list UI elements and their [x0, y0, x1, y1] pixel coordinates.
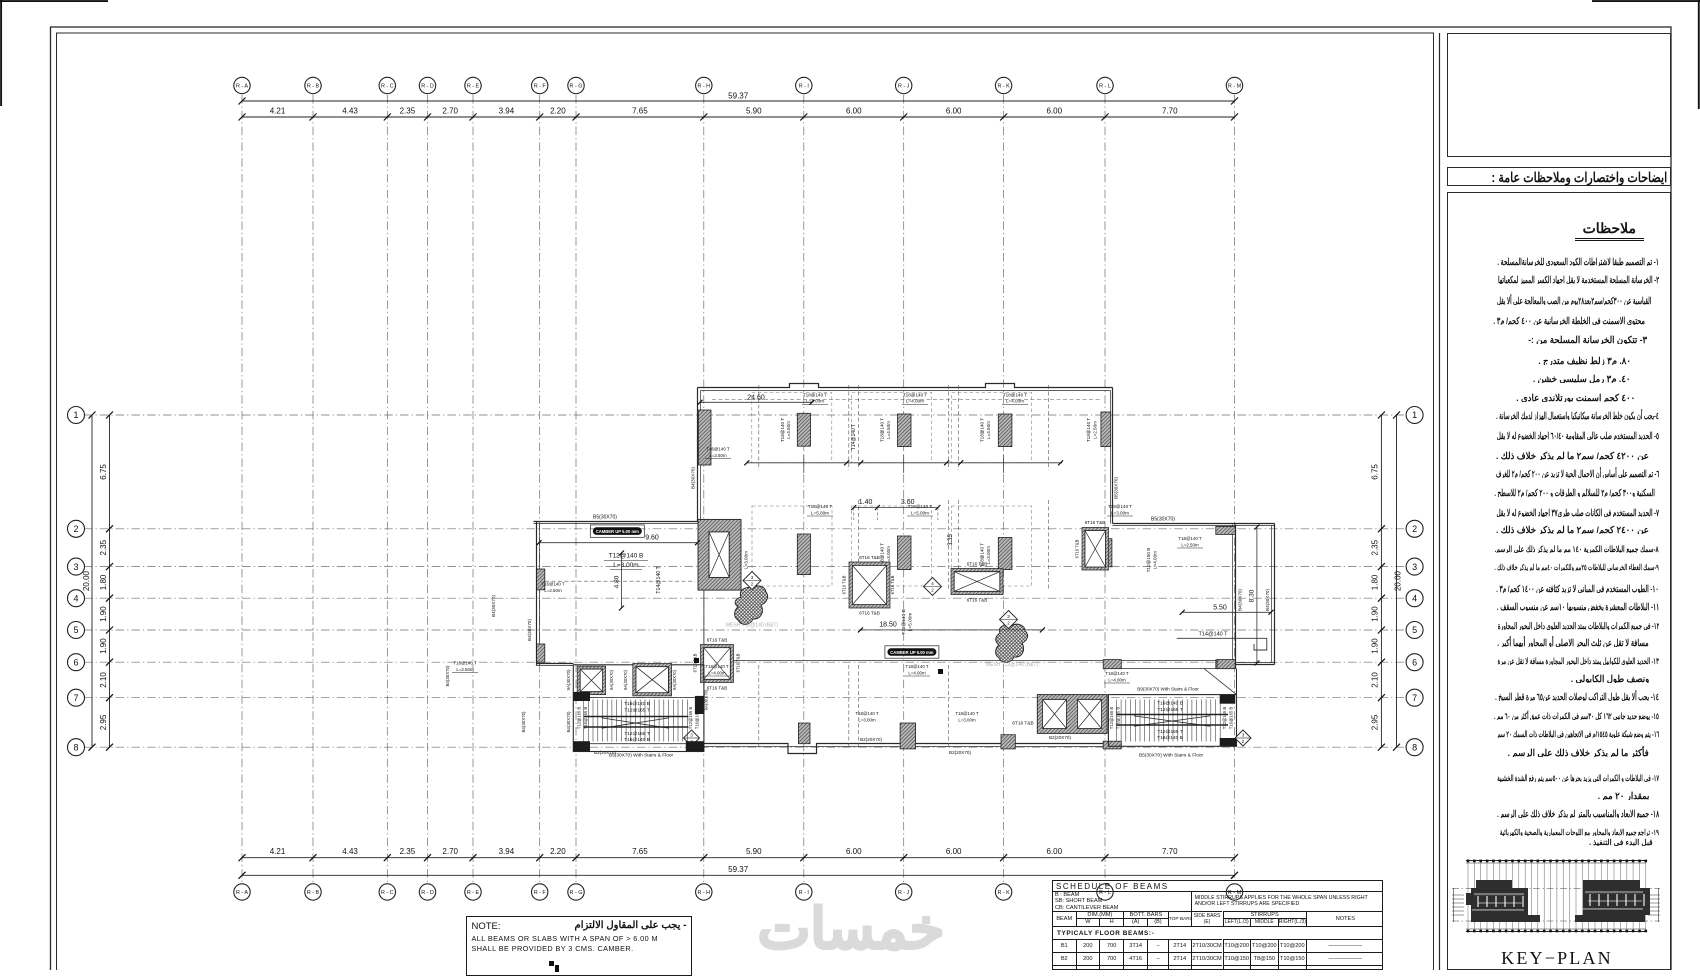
svg-text:6T16 T&B: 6T16 T&B — [859, 555, 880, 560]
svg-text:4.43: 4.43 — [342, 107, 358, 116]
svg-text:T14@140 T: T14@140 T — [1198, 631, 1228, 637]
svg-text:T18@140 T: T18@140 T — [780, 418, 785, 442]
svg-text:R - L: R - L — [1099, 84, 1111, 90]
svg-text:B4(30X70): B4(30X70) — [527, 619, 532, 641]
svg-text:L=3.00m: L=3.00m — [743, 551, 748, 569]
svg-text:2.35: 2.35 — [400, 847, 416, 856]
svg-text:L=5.00m: L=5.00m — [908, 613, 914, 632]
svg-text:20.00: 20.00 — [82, 570, 91, 591]
svg-text:T16@140 B: T16@140 B — [624, 701, 650, 707]
svg-text:1.40: 1.40 — [859, 499, 873, 506]
svg-text:24.60: 24.60 — [747, 394, 765, 401]
svg-text:3.60: 3.60 — [901, 499, 915, 506]
svg-text:L=3.00m: L=3.00m — [858, 717, 876, 722]
svg-text:3.94: 3.94 — [499, 847, 515, 856]
svg-text:T18@140 T: T18@140 T — [1086, 418, 1091, 442]
svg-text:2.10: 2.10 — [99, 672, 108, 688]
svg-text:CAMBER UP 5.00 mm: CAMBER UP 5.00 mm — [890, 650, 933, 655]
svg-text:1.90: 1.90 — [1371, 606, 1380, 622]
svg-text:L=4.00m: L=4.00m — [1108, 677, 1126, 682]
svg-text:T18@140 T: T18@140 T — [980, 418, 985, 442]
svg-text:B5(30X70) With Stairs & Floor: B5(30X70) With Stairs & Floor — [1139, 753, 1204, 759]
svg-text:6T16 T&B: 6T16 T&B — [967, 598, 988, 603]
svg-text:T12@165 T: T12@165 T — [1157, 707, 1182, 713]
svg-text:1.80: 1.80 — [99, 574, 108, 590]
svg-text:L=5.00m: L=5.00m — [911, 510, 929, 515]
svg-text:MESH T12@140 (B&T): MESH T12@140 (B&T) — [726, 623, 779, 629]
svg-text:T12@140 B: T12@140 B — [901, 609, 907, 635]
svg-text:2.70: 2.70 — [442, 107, 458, 116]
svg-text:1: 1 — [73, 410, 78, 420]
svg-text:R - A: R - A — [236, 84, 248, 90]
svg-text:T18@140 T: T18@140 T — [1108, 504, 1132, 509]
svg-text:T18@140 T: T18@140 T — [905, 664, 928, 669]
svg-text:R - B: R - B — [307, 890, 320, 896]
svg-text:B5(30X70): B5(30X70) — [593, 515, 617, 521]
svg-text:L=3.00m: L=3.00m — [958, 717, 976, 722]
svg-text:L=3.00m: L=3.00m — [886, 546, 891, 564]
svg-text:6T16 T&B: 6T16 T&B — [736, 653, 741, 672]
svg-text:R - F: R - F — [534, 84, 547, 90]
svg-text:5.50: 5.50 — [1213, 604, 1227, 611]
svg-text:4.21: 4.21 — [270, 107, 286, 116]
svg-text:6T16 T&B: 6T16 T&B — [859, 611, 880, 616]
svg-text:1.90: 1.90 — [99, 606, 108, 622]
svg-text:6.00: 6.00 — [846, 847, 862, 856]
svg-text:1: 1 — [1412, 410, 1417, 420]
svg-text:R - B: R - B — [307, 84, 320, 90]
svg-text:4.21: 4.21 — [270, 847, 286, 856]
svg-text:B4(30X70): B4(30X70) — [491, 595, 496, 617]
svg-text:4: 4 — [1412, 593, 1417, 603]
svg-text:T16@140 B: T16@140 B — [624, 737, 650, 743]
svg-text:T16@140 T: T16@140 T — [706, 447, 729, 452]
svg-text:R - F: R - F — [534, 890, 547, 896]
svg-text:R - M: R - M — [1228, 84, 1242, 90]
svg-text:6.00: 6.00 — [1047, 847, 1063, 856]
svg-text:6.75: 6.75 — [99, 464, 108, 480]
svg-text:CAMBER UP 5.00 mm: CAMBER UP 5.00 mm — [596, 529, 639, 534]
svg-text:T18@140 T: T18@140 T — [1178, 536, 1201, 541]
svg-text:T16@165 B: T16@165 B — [1116, 707, 1121, 730]
svg-text:6T16 T&B: 6T16 T&B — [707, 686, 728, 691]
svg-text:T18@140 T: T18@140 T — [903, 392, 927, 397]
svg-text:6T16 T&B: 6T16 T&B — [1085, 520, 1106, 525]
svg-text:6.00: 6.00 — [846, 107, 862, 116]
svg-text:6.00: 6.00 — [946, 847, 962, 856]
svg-text:R - I: R - I — [799, 84, 809, 90]
svg-text:2: 2 — [73, 524, 78, 534]
svg-text:3.94: 3.94 — [499, 107, 515, 116]
svg-text:2.20: 2.20 — [550, 847, 566, 856]
svg-text:2.95: 2.95 — [1371, 714, 1380, 730]
svg-text:2: 2 — [1412, 524, 1417, 534]
svg-text:R - H: R - H — [698, 890, 711, 896]
svg-text:B5(30X70) With Stairs & Floor: B5(30X70) With Stairs & Floor — [609, 753, 674, 759]
svg-text:L=3.00m: L=3.00m — [613, 562, 638, 569]
svg-text:L=2.50m: L=2.50m — [1181, 542, 1199, 547]
svg-text:4.43: 4.43 — [342, 847, 358, 856]
svg-text:MESH T12@140 (B&T): MESH T12@140 (B&T) — [986, 662, 1039, 668]
svg-text:9A(30X70): 9A(30X70) — [704, 689, 709, 711]
svg-text:9.60: 9.60 — [645, 535, 659, 542]
svg-text:B2(20X70): B2(20X70) — [1049, 735, 1071, 740]
svg-text:6.00: 6.00 — [1047, 107, 1063, 116]
svg-text:2.35: 2.35 — [400, 107, 416, 116]
svg-text:18.50: 18.50 — [879, 622, 897, 629]
svg-text:5.90: 5.90 — [746, 847, 762, 856]
svg-text:2.10: 2.10 — [1371, 672, 1380, 688]
svg-text:20.00: 20.00 — [1394, 570, 1403, 591]
svg-text:T18@140 T: T18@140 T — [1105, 671, 1128, 676]
svg-text:1.80: 1.80 — [1371, 574, 1380, 590]
svg-text:L=2.50m: L=2.50m — [456, 667, 474, 672]
svg-text:7.70: 7.70 — [1162, 107, 1178, 116]
svg-text:L=2.50m: L=2.50m — [1092, 421, 1097, 439]
svg-text:1.90: 1.90 — [99, 638, 108, 654]
svg-text:6.00: 6.00 — [946, 107, 962, 116]
svg-text:L=4.50m: L=4.50m — [886, 421, 891, 439]
svg-text:T12@165 T: T12@165 T — [1157, 729, 1182, 735]
svg-text:9A(30X70): 9A(30X70) — [609, 669, 614, 690]
svg-text:5.90: 5.90 — [746, 107, 762, 116]
svg-text:T12@165 T: T12@165 T — [624, 731, 649, 737]
svg-text:B2(20X70): B2(20X70) — [949, 750, 971, 755]
svg-text:R - G: R - G — [570, 84, 583, 90]
svg-text:7.65: 7.65 — [632, 847, 648, 856]
svg-text:L=5.00m: L=5.00m — [811, 510, 829, 515]
svg-text:R - J: R - J — [898, 84, 910, 90]
svg-text:R - C: R - C — [381, 890, 394, 896]
svg-text:9A(30X70): 9A(30X70) — [623, 669, 628, 690]
svg-text:8: 8 — [73, 742, 78, 752]
svg-text:R - E: R - E — [467, 84, 480, 90]
svg-text:B5(30X70): B5(30X70) — [1114, 477, 1119, 499]
svg-text:6T16 T&B: 6T16 T&B — [890, 575, 895, 594]
svg-text:R - D: R - D — [421, 84, 434, 90]
svg-text:6T16 T&B: 6T16 T&B — [707, 638, 728, 643]
svg-text:L=4.00m: L=4.00m — [1152, 551, 1157, 569]
svg-text:3: 3 — [1412, 562, 1417, 572]
svg-text:L=2.50m: L=2.50m — [544, 588, 562, 593]
svg-text:6T16 T&B: 6T16 T&B — [967, 562, 988, 567]
svg-text:T18@140 T: T18@140 T — [705, 664, 728, 669]
svg-text:B9(30X70) With Stairs & Floor: B9(30X70) With Stairs & Floor — [1137, 687, 1199, 692]
svg-text:4: 4 — [73, 593, 78, 603]
svg-text:T16@140 B: T16@140 B — [1157, 701, 1183, 707]
svg-text:T18@140 T: T18@140 T — [955, 711, 978, 716]
svg-text:B4(30X70): B4(30X70) — [566, 711, 571, 733]
svg-text:B4(30X70): B4(30X70) — [445, 665, 450, 687]
svg-text:7.70: 7.70 — [1162, 847, 1178, 856]
svg-text:4.80: 4.80 — [613, 575, 620, 588]
svg-text:R - H: R - H — [698, 84, 711, 90]
svg-text:T12@165 B: T12@165 B — [688, 707, 693, 730]
svg-text:2.35: 2.35 — [99, 539, 108, 555]
svg-text:T12@140 B: T12@140 B — [609, 553, 644, 560]
svg-text:T16@165 B: T16@165 B — [695, 707, 700, 730]
svg-text:T12@165 B: T12@165 B — [1109, 707, 1114, 730]
svg-text:T12@150 B: T12@150 B — [1146, 548, 1151, 573]
svg-text:6.75: 6.75 — [1371, 464, 1380, 480]
svg-text:L=2.50m: L=2.50m — [709, 453, 727, 458]
svg-text:5: 5 — [73, 625, 78, 635]
svg-text:L=3.00m: L=3.00m — [1111, 510, 1129, 515]
svg-text:9A(30X70): 9A(30X70) — [566, 669, 571, 691]
svg-text:L=4.50m: L=4.50m — [986, 421, 991, 439]
svg-text:B4(30X70): B4(30X70) — [521, 711, 526, 733]
svg-text:T18@140 T: T18@140 T — [880, 418, 885, 442]
svg-text:T14@140 T: T14@140 T — [656, 565, 662, 593]
svg-text:R - E: R - E — [467, 890, 480, 896]
svg-text:R - J: R - J — [898, 890, 910, 896]
svg-text:5: 5 — [1412, 625, 1417, 635]
svg-text:R - C: R - C — [381, 84, 394, 90]
svg-text:T12@165 B: T12@165 B — [577, 707, 582, 730]
svg-text:2.35: 2.35 — [1371, 539, 1380, 555]
svg-text:B2(20X70): B2(20X70) — [860, 737, 882, 742]
svg-text:7: 7 — [1412, 693, 1417, 703]
svg-text:T16@165 B: T16@165 B — [1229, 707, 1234, 730]
svg-text:T16@140 B: T16@140 B — [1157, 735, 1183, 741]
svg-text:R - D: R - D — [421, 890, 434, 896]
svg-text:7: 7 — [73, 693, 78, 703]
svg-text:8.30: 8.30 — [1249, 589, 1256, 602]
svg-text:R - K: R - K — [997, 84, 1010, 90]
svg-text:59.37: 59.37 — [728, 865, 749, 874]
svg-text:T18@140 T: T18@140 T — [453, 661, 476, 666]
svg-text:T18@140 T: T18@140 T — [803, 392, 827, 397]
svg-text:2.20: 2.20 — [550, 107, 566, 116]
svg-text:B4(30X70): B4(30X70) — [691, 467, 696, 489]
svg-text:L=4.00m: L=4.00m — [806, 399, 824, 404]
svg-text:R - A: R - A — [236, 890, 248, 896]
svg-text:L=4.50m: L=4.50m — [786, 421, 791, 439]
svg-text:6T16 T&B: 6T16 T&B — [842, 575, 847, 594]
svg-text:8: 8 — [1412, 742, 1417, 752]
svg-text:3.35: 3.35 — [948, 534, 954, 546]
svg-text:L=4.00m: L=4.00m — [908, 670, 926, 675]
svg-text:B4(30X70): B4(30X70) — [1238, 589, 1243, 611]
svg-text:L=4.00m: L=4.00m — [708, 670, 726, 675]
svg-text:B4(30X70): B4(30X70) — [1265, 589, 1270, 611]
svg-text:R - K: R - K — [997, 890, 1010, 896]
svg-text:9A(30X70): 9A(30X70) — [672, 669, 677, 690]
svg-text:T16@165 B: T16@165 B — [583, 707, 588, 730]
svg-text:T16@140 T: T16@140 T — [541, 582, 564, 587]
svg-text:7.65: 7.65 — [632, 107, 648, 116]
svg-text:R - G: R - G — [570, 890, 583, 896]
svg-text:B5(30X70): B5(30X70) — [1151, 517, 1175, 523]
svg-text:6: 6 — [73, 657, 78, 667]
svg-text:3: 3 — [73, 562, 78, 572]
svg-text:2.70: 2.70 — [442, 847, 458, 856]
svg-text:6T16 T&B: 6T16 T&B — [1075, 539, 1080, 558]
svg-text:T18@140 T: T18@140 T — [1003, 392, 1027, 397]
svg-text:6: 6 — [1412, 657, 1417, 667]
svg-text:T18@140 T: T18@140 T — [808, 504, 832, 509]
svg-text:59.37: 59.37 — [728, 92, 749, 101]
svg-text:T12@165 T: T12@165 T — [624, 708, 649, 714]
svg-text:T12@165 B: T12@165 B — [1222, 707, 1227, 730]
svg-text:L=4.00m: L=4.00m — [906, 399, 924, 404]
svg-text:1.90: 1.90 — [1371, 638, 1380, 654]
svg-text:L=4.00m: L=4.00m — [1006, 399, 1024, 404]
svg-text:6T16 T&B: 6T16 T&B — [1012, 720, 1034, 726]
svg-text:R - I: R - I — [799, 890, 809, 896]
svg-text:2.95: 2.95 — [99, 714, 108, 730]
